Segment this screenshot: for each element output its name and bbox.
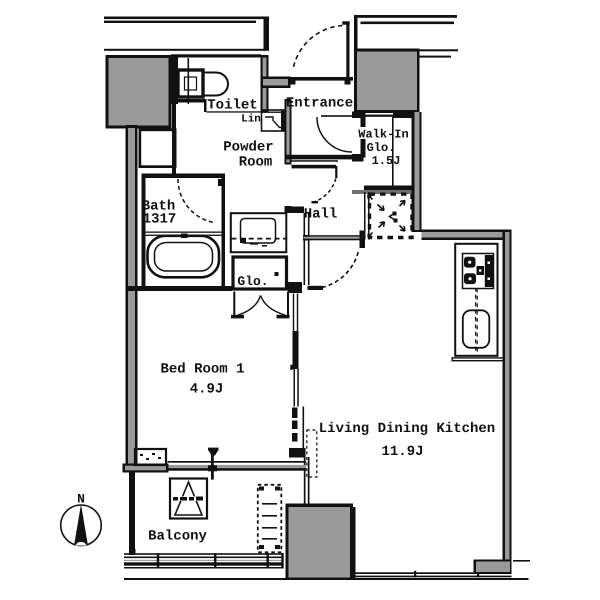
svg-text:1317: 1317	[143, 212, 177, 228]
svg-text:Bed Room 1: Bed Room 1	[160, 362, 244, 378]
svg-text:Balcony: Balcony	[148, 529, 207, 545]
svg-text:Glo.: Glo.	[237, 274, 268, 289]
svg-text:Lin: Lin	[241, 114, 261, 126]
svg-text:Toilet: Toilet	[207, 98, 257, 114]
svg-text:Walk-In: Walk-In	[358, 128, 408, 142]
svg-text:Glo.: Glo.	[367, 141, 396, 155]
svg-text:4.9J: 4.9J	[190, 382, 224, 398]
svg-text:Entrance: Entrance	[286, 96, 353, 112]
svg-text:N: N	[77, 492, 85, 507]
svg-text:1.5J: 1.5J	[372, 154, 401, 168]
svg-text:Living Dining Kitchen: Living Dining Kitchen	[319, 421, 495, 437]
svg-text:Powder: Powder	[223, 140, 273, 156]
svg-text:Room: Room	[239, 155, 273, 171]
svg-text:Hall: Hall	[304, 207, 338, 223]
svg-text:11.9J: 11.9J	[381, 444, 423, 460]
